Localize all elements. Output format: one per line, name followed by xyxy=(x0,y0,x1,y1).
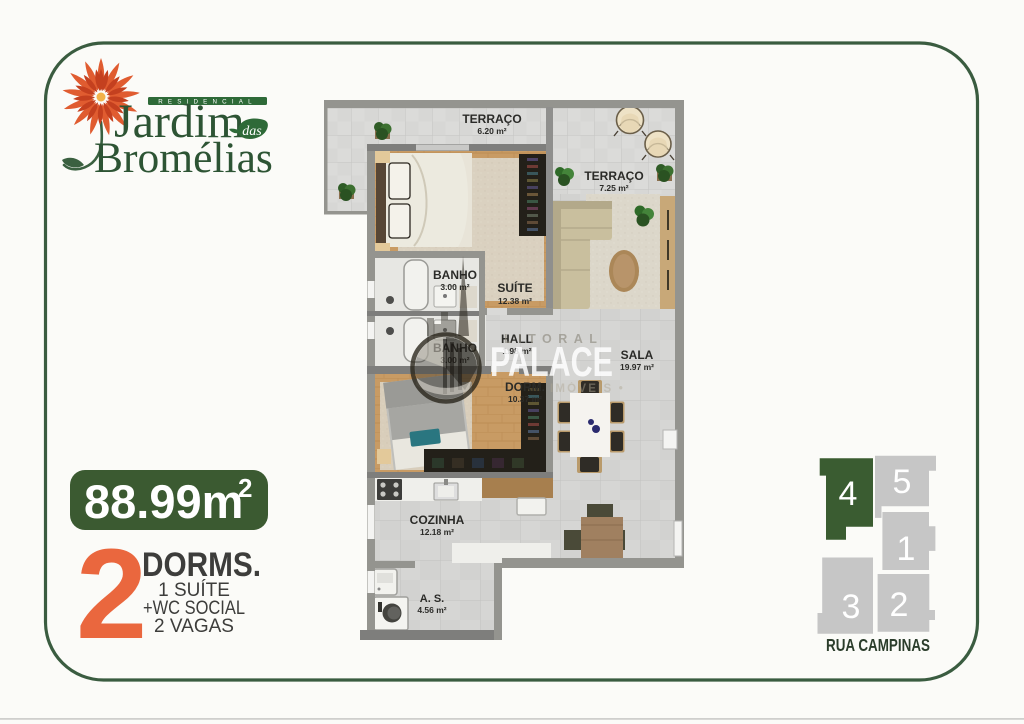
svg-text:19.97 m²: 19.97 m² xyxy=(620,362,654,372)
svg-text:DORMS.: DORMS. xyxy=(142,546,261,584)
svg-text:10.37 m²: 10.37 m² xyxy=(508,394,542,404)
svg-text:TERRAÇO: TERRAÇO xyxy=(584,169,643,183)
svg-text:2: 2 xyxy=(76,523,147,666)
svg-text:IMÓVEIS •: IMÓVEIS • xyxy=(550,382,625,395)
svg-text:A. S.: A. S. xyxy=(420,593,444,605)
svg-text:RUA CAMPINAS: RUA CAMPINAS xyxy=(826,635,930,655)
svg-text:88.99m: 88.99m xyxy=(84,475,243,528)
svg-text:7.25 m²: 7.25 m² xyxy=(599,183,628,193)
svg-text:SUÍTE: SUÍTE xyxy=(497,280,532,295)
svg-text:4.56 m²: 4.56 m² xyxy=(417,605,446,615)
svg-text:12.38 m²: 12.38 m² xyxy=(498,296,532,306)
svg-text:2 VAGAS: 2 VAGAS xyxy=(154,616,234,637)
svg-text:5: 5 xyxy=(893,463,912,501)
svg-text:BANHO: BANHO xyxy=(433,268,477,282)
svg-text:SALA: SALA xyxy=(621,348,654,362)
svg-text:COZINHA: COZINHA xyxy=(410,513,465,527)
svg-text:2: 2 xyxy=(238,473,252,503)
svg-text:PALACE: PALACE xyxy=(490,338,613,385)
svg-text:1: 1 xyxy=(897,530,916,568)
svg-text:4: 4 xyxy=(839,475,858,513)
svg-text:3: 3 xyxy=(842,588,861,626)
svg-text:12.18 m²: 12.18 m² xyxy=(420,527,454,537)
svg-text:6.20 m²: 6.20 m² xyxy=(477,126,506,136)
svg-text:2: 2 xyxy=(890,586,909,624)
svg-text:TERRAÇO: TERRAÇO xyxy=(462,112,521,126)
svg-text:Bromélias: Bromélias xyxy=(94,134,273,182)
